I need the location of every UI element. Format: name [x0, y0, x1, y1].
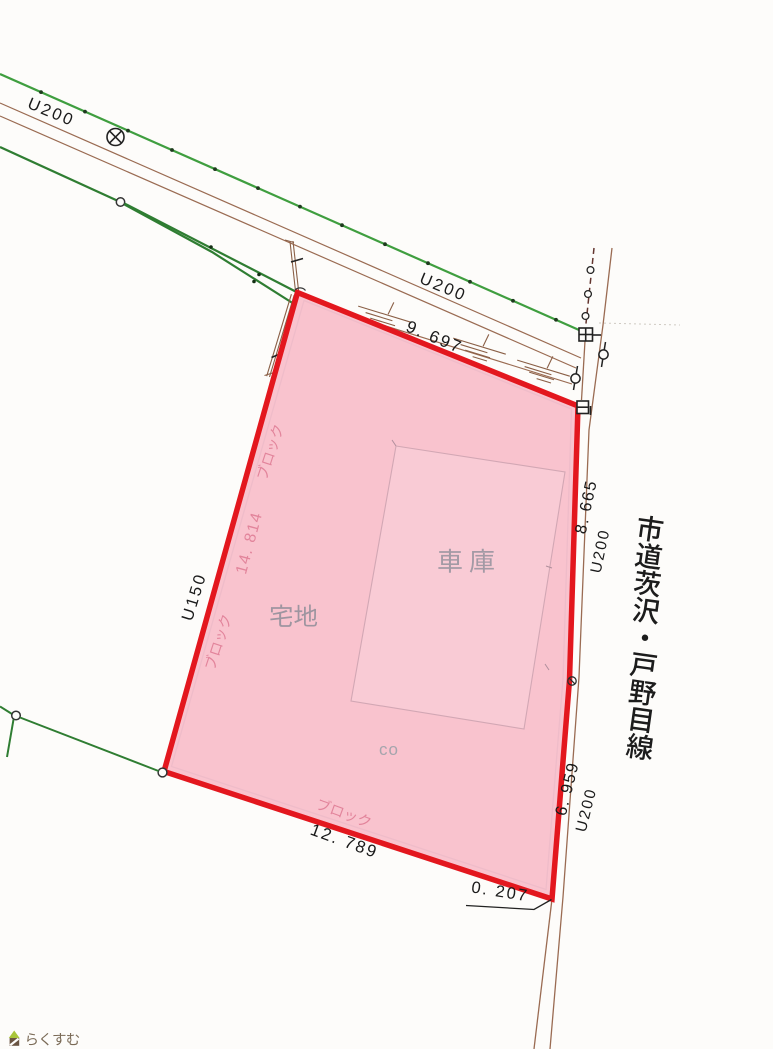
- svg-text:co: co: [379, 740, 399, 759]
